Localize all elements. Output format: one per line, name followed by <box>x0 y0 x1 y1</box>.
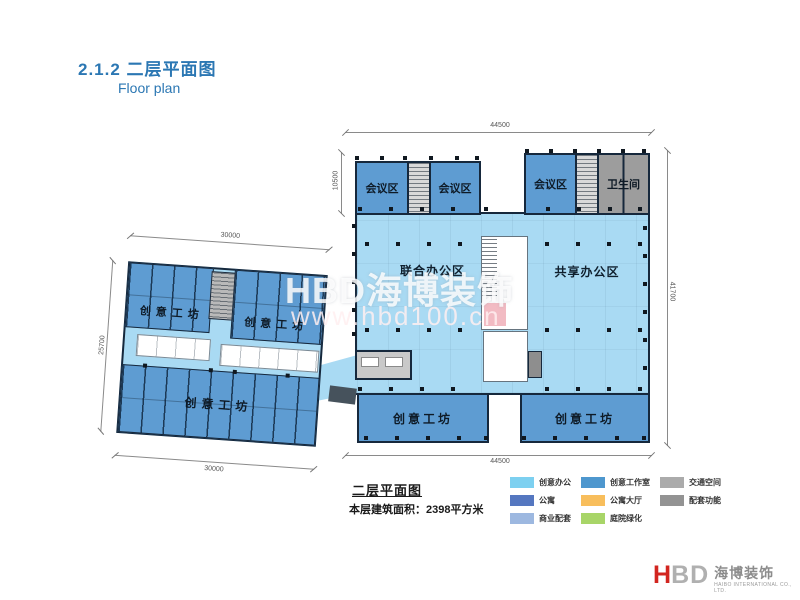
legend-label: 创意办公 <box>539 477 571 488</box>
column-dot <box>522 436 526 440</box>
room-shared-office: 共享办公区 <box>537 263 637 280</box>
column-dot <box>638 207 642 211</box>
legend-title: 二层平面图 <box>352 480 422 499</box>
room-label: 会议区 <box>534 176 567 192</box>
room-label: 创意工坊 <box>393 410 453 427</box>
legend-label: 交通空间 <box>689 477 721 488</box>
dim-line-main-left-upper <box>341 152 342 214</box>
corridor-skylight <box>219 344 319 373</box>
column-dot <box>638 387 642 391</box>
stair-core-2 <box>575 153 599 215</box>
column-dot <box>643 254 647 258</box>
dim-label-annex-bottom: 30000 <box>184 464 244 475</box>
room-meeting-2: 会议区 <box>429 161 481 215</box>
column-dot <box>638 242 642 246</box>
column-dot <box>286 373 290 377</box>
link-ramp <box>328 385 357 404</box>
column-dot <box>643 226 647 230</box>
elevator-core <box>528 351 542 378</box>
column-dot <box>577 207 581 211</box>
legend-item: 庭院绿化 <box>581 513 650 524</box>
column-dot <box>607 387 611 391</box>
logo-company-en: HAIBO INTERNATIONAL CO., LTD. <box>714 582 800 594</box>
column-dot <box>233 370 237 374</box>
legend-label: 创意工作室 <box>610 477 650 488</box>
legend-label: 公寓大厅 <box>610 495 642 506</box>
column-dot <box>525 149 529 153</box>
column-dot <box>545 328 549 332</box>
column-dot <box>352 252 356 256</box>
column-dot <box>475 156 479 160</box>
logo-company-cn: 海博装饰 <box>714 566 800 580</box>
column-dot <box>615 436 619 440</box>
column-dot <box>643 310 647 314</box>
column-dot <box>420 207 424 211</box>
column-dot <box>457 436 461 440</box>
column-dot <box>643 338 647 342</box>
column-dot <box>209 368 213 372</box>
room-meeting-1: 会议区 <box>355 161 409 215</box>
column-dot <box>389 387 393 391</box>
legend-swatch <box>581 477 605 488</box>
column-dot <box>451 387 455 391</box>
column-dot <box>451 207 455 211</box>
column-dot <box>352 332 356 336</box>
column-dot <box>576 387 580 391</box>
legend-swatch <box>510 495 534 506</box>
room-restroom: 卫生间 <box>597 153 650 215</box>
slide-canvas: 2.1.2 二层平面图 Floor plan 44500 44500 41700… <box>0 0 800 600</box>
legend-swatch <box>581 513 605 524</box>
column-dot <box>642 436 646 440</box>
room-meeting-3: 会议区 <box>524 153 577 215</box>
legend-label: 商业配套 <box>539 513 571 524</box>
column-dot <box>355 156 359 160</box>
column-dot <box>358 207 362 211</box>
column-dot <box>389 207 393 211</box>
dim-label-annex-top: 30000 <box>200 230 260 241</box>
column-dot <box>403 156 407 160</box>
column-dot <box>380 156 384 160</box>
column-dot <box>429 156 433 160</box>
room-label: 卫生间 <box>607 176 640 192</box>
column-dot <box>358 387 362 391</box>
column-dot <box>545 242 549 246</box>
dim-line-main-bottom <box>345 455 652 456</box>
stair-flight <box>385 357 403 367</box>
column-dot <box>395 436 399 440</box>
logo-letter-h: H <box>653 563 671 588</box>
column-dot <box>576 328 580 332</box>
column-dot <box>553 436 557 440</box>
room-workshop-bottom-left: 创意工坊 <box>357 393 489 443</box>
column-dot <box>420 387 424 391</box>
column-dot <box>638 328 642 332</box>
stair-core-1 <box>407 161 431 215</box>
dim-label-main-right: 41700 <box>669 260 676 324</box>
column-dot <box>427 242 431 246</box>
dim-line-main-top <box>345 132 652 133</box>
legend-label: 庭院绿化 <box>610 513 642 524</box>
legend-swatch <box>581 495 605 506</box>
west-stair-core <box>355 350 412 380</box>
room-label: 会议区 <box>439 180 472 196</box>
watermark-url: www.hbd100.cn <box>291 301 501 332</box>
legend-item: 交通空间 <box>660 477 721 488</box>
legend: 创意办公创意工作室交通空间公寓公寓大厅配套功能商业配套庭院绿化 <box>510 477 721 524</box>
column-dot <box>458 242 462 246</box>
atrium-void-lower <box>483 331 528 382</box>
legend-swatch <box>660 495 684 506</box>
column-dot <box>143 364 147 368</box>
column-dot <box>573 149 577 153</box>
legend-swatch <box>510 477 534 488</box>
dim-label-main-bottom: 44500 <box>468 458 532 465</box>
legend-item: 公寓大厅 <box>581 495 650 506</box>
legend-item: 创意办公 <box>510 477 571 488</box>
legend-label: 公寓 <box>539 495 555 506</box>
column-dot <box>597 149 601 153</box>
stair-flight <box>361 357 379 367</box>
column-dot <box>545 387 549 391</box>
column-dot <box>607 328 611 332</box>
column-dot <box>365 242 369 246</box>
column-dot <box>364 436 368 440</box>
logo-letters-bd: BD <box>671 563 709 588</box>
dim-label-main-left-upper: 10500 <box>333 151 340 211</box>
column-dot <box>621 149 625 153</box>
column-dot <box>484 436 488 440</box>
page-subtitle: Floor plan <box>118 80 180 96</box>
column-dot <box>484 207 488 211</box>
dim-label-main-top: 44500 <box>468 122 532 129</box>
legend-label: 配套功能 <box>689 495 721 506</box>
column-dot <box>576 242 580 246</box>
column-dot <box>643 366 647 370</box>
room-label: 会议区 <box>366 180 399 196</box>
legend-item: 配套功能 <box>660 495 721 506</box>
column-dot <box>352 224 356 228</box>
column-dot <box>584 436 588 440</box>
column-dot <box>607 242 611 246</box>
legend-swatch <box>510 513 534 524</box>
column-dot <box>643 282 647 286</box>
column-dot <box>426 436 430 440</box>
legend-item: 公寓 <box>510 495 571 506</box>
column-dot <box>608 207 612 211</box>
company-logo: H BD 海博装饰 HAIBO INTERNATIONAL CO., LTD. <box>653 563 800 594</box>
column-dot <box>455 156 459 160</box>
legend-item: 创意工作室 <box>581 477 650 488</box>
corridor-skylight <box>136 334 211 361</box>
page-title: 2.1.2 二层平面图 <box>78 55 217 80</box>
room-label: 创意工坊 <box>555 410 615 427</box>
legend-swatch <box>660 477 684 488</box>
legend-area-text: 本层建筑面积：2398平方米 <box>349 501 483 517</box>
annex-stair-core <box>208 271 235 321</box>
legend-item: 商业配套 <box>510 513 571 524</box>
column-dot <box>642 149 646 153</box>
column-dot <box>396 242 400 246</box>
column-dot <box>549 149 553 153</box>
column-dot <box>546 207 550 211</box>
